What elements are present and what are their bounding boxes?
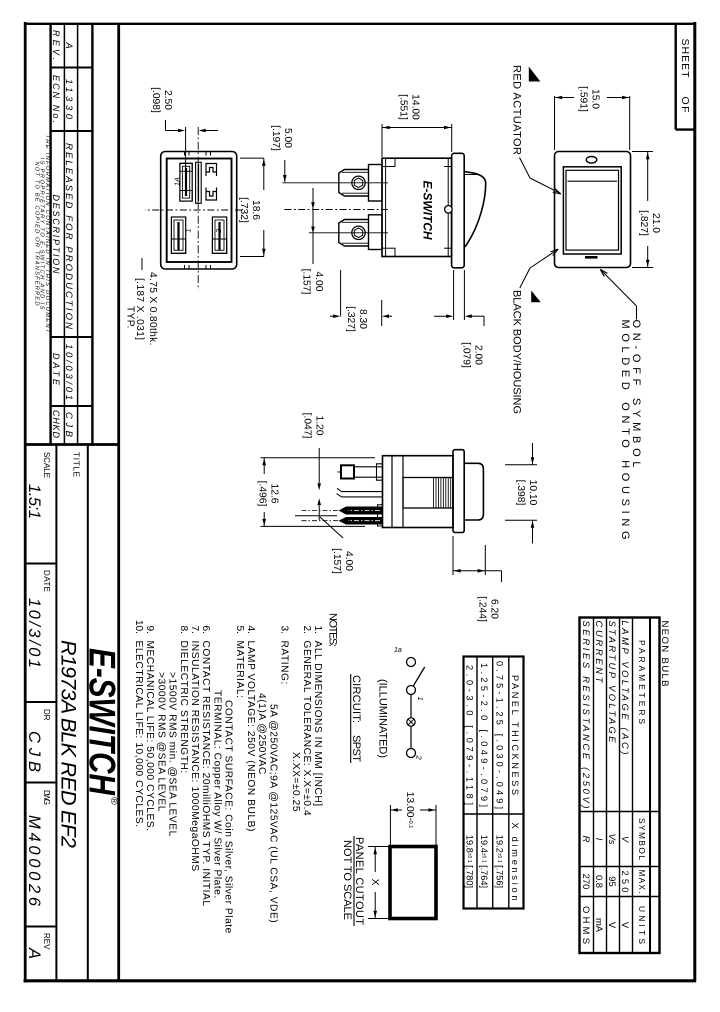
svg-text:R: R (581, 836, 592, 843)
svg-text:I: I (594, 838, 605, 841)
svg-text:DR: DR (42, 709, 51, 721)
svg-text:2.00: 2.00 (473, 345, 484, 365)
svg-text:[.827]: [.827] (638, 210, 649, 236)
svg-text:21.0: 21.0 (650, 213, 661, 233)
svg-text:MATERIAL:: MATERIAL: (234, 641, 245, 699)
svg-text:12.6: 12.6 (269, 483, 280, 503)
svg-text:6.20: 6.20 (489, 599, 500, 619)
svg-text:NOTES:: NOTES: (327, 613, 339, 647)
svg-text:[.197]: [.197] (270, 125, 281, 151)
svg-text:TERMINAL: Copper Alloy W/ Silv: TERMINAL: Copper Alloy W/ Silver Plate. (211, 690, 222, 899)
svg-text:[.079]: [.079] (461, 342, 472, 368)
svg-text:MAX.: MAX. (637, 870, 647, 894)
svg-text:1: 1 (184, 229, 193, 233)
svg-text:SHEET: SHEET (679, 39, 691, 79)
svg-text:[.496]: [.496] (256, 481, 267, 507)
svg-text:270: 270 (581, 874, 592, 890)
svg-text:4.00: 4.00 (313, 271, 324, 291)
svg-text:RATING:: RATING: (279, 641, 290, 685)
svg-text:18.6: 18.6 (250, 200, 261, 220)
svg-text:E-SWITCH: E-SWITCH (421, 181, 435, 240)
svg-text:E-SWITCH: E-SWITCH (82, 648, 123, 796)
svg-text:8.: 8. (178, 626, 189, 635)
svg-text:(ILLUMINATED): (ILLUMINATED) (377, 679, 389, 758)
svg-text:CIRCUIT:: CIRCUIT: (350, 675, 362, 723)
svg-text:7.: 7. (189, 626, 200, 635)
svg-text:CJB: CJB (25, 731, 43, 772)
svg-text:BLACK BODY/HOUSING: BLACK BODY/HOUSING (511, 290, 523, 414)
svg-text:GENERAL TOLERANCE: X.X=±0.4: GENERAL TOLERANCE: X.X=±0.4 (301, 641, 312, 817)
svg-text:0.8: 0.8 (594, 875, 605, 888)
svg-text:8.30: 8.30 (357, 309, 368, 329)
svg-text:2.: 2. (301, 626, 312, 635)
svg-text:5.: 5. (234, 626, 245, 635)
svg-text:4.: 4. (245, 626, 256, 635)
svg-text:4.75 X 0.80thk.: 4.75 X 0.80thk. (147, 272, 158, 346)
svg-text:1.20: 1.20 (314, 415, 325, 435)
svg-text:ELECTRICAL LIFE: 10,000 CYCLES: ELECTRICAL LIFE: 10,000 CYCLES. (133, 641, 144, 828)
svg-text:NOT TO BE COPIED OR TRANSFERRE: NOT TO BE COPIED OR TRANSFERRED (33, 162, 39, 306)
svg-text:NOT TO SCALE: NOT TO SCALE (341, 840, 353, 920)
svg-text:[.047]: [.047] (301, 413, 312, 439)
svg-text:0.75-1.25 [.030-.049]: 0.75-1.25 [.030-.049] (495, 661, 505, 809)
svg-text:CHKD: CHKD (51, 410, 61, 439)
svg-text:2: 2 (415, 755, 424, 761)
svg-text:SPST: SPST (350, 735, 362, 762)
svg-text:1: 1 (416, 697, 425, 701)
svg-text:14.00: 14.00 (410, 94, 421, 120)
svg-text:ALL DIMENSIONS IN MM [INCH]: ALL DIMENSIONS IN MM [INCH] (312, 641, 323, 807)
svg-text:1.5:1: 1.5:1 (25, 484, 43, 519)
svg-text:RELEASED FOR PRODUCTION: RELEASED FOR PRODUCTION (63, 143, 74, 329)
svg-text:®: ® (108, 797, 120, 805)
svg-text:X: X (369, 879, 380, 886)
svg-text:UNITS: UNITS (637, 906, 647, 944)
svg-text:RED ACTUATOR: RED ACTUATOR (511, 65, 523, 155)
svg-text:4(1)A @250VAC: 4(1)A @250VAC (256, 693, 267, 775)
svg-text:SCALE: SCALE (42, 452, 51, 478)
svg-text:TYP.: TYP. (125, 306, 136, 329)
svg-text:PANEL THICKNESS: PANEL THICKNESS (510, 675, 520, 795)
svg-text:mA: mA (594, 918, 605, 933)
svg-text:9.: 9. (144, 626, 155, 635)
svg-text:1A: 1A (173, 177, 182, 186)
svg-text:OF: OF (679, 97, 691, 113)
svg-text:DIELECTRIC STRENGTH:: DIELECTRIC STRENGTH: (178, 641, 189, 774)
svg-text:PANEL CUTOUT: PANEL CUTOUT (353, 837, 365, 925)
svg-text:Vs: Vs (607, 834, 618, 845)
svg-text:A: A (63, 41, 74, 48)
svg-text:15.0: 15.0 (590, 89, 601, 109)
svg-text:CJB: CJB (63, 412, 74, 438)
svg-text:[.398]: [.398] (515, 480, 526, 506)
svg-text:DWG: DWG (42, 790, 51, 805)
svg-text:LAMP VOLTAGE: 250V (NEON BULB): LAMP VOLTAGE: 250V (NEON BULB) (245, 641, 256, 832)
svg-text:[.244]: [.244] (477, 596, 488, 622)
svg-text:X.XX=±0.25: X.XX=±0.25 (290, 752, 301, 812)
svg-text:250: 250 (620, 871, 631, 893)
svg-text:1a: 1a (394, 647, 402, 654)
svg-text:INSULATION RESISTANCE: 1000Meg: INSULATION RESISTANCE: 1000MegaOHMS (189, 641, 200, 872)
svg-text:5.00: 5.00 (282, 128, 293, 148)
svg-text:V: V (620, 836, 631, 843)
svg-text:>1500V RMS min. @SEA LEVEL: >1500V RMS min. @SEA LEVEL (167, 672, 178, 837)
svg-text:[.098]: [.098] (150, 87, 161, 113)
svg-text:[.157]: [.157] (301, 269, 312, 295)
svg-text:[.327]: [.327] (345, 306, 356, 332)
svg-text:CONTACT SURFACE: Coin Silver,: CONTACT SURFACE: Coin Silver, Silver Pla… (223, 700, 234, 934)
svg-text:V: V (607, 922, 618, 929)
svg-text:3.: 3. (279, 626, 290, 635)
svg-text:10.: 10. (133, 620, 144, 634)
svg-text:V: V (620, 922, 631, 929)
svg-text:R1973A BLK RED EF2: R1973A BLK RED EF2 (57, 640, 81, 848)
svg-text:DATE: DATE (42, 570, 51, 592)
svg-text:5A @250VAC;9A @125VAC (UL CSA,: 5A @250VAC;9A @125VAC (UL CSA, VDE) (267, 704, 278, 923)
svg-text:[.157]: [.157] (331, 548, 342, 574)
svg-text:LAMP VOLTAGE (AC): LAMP VOLTAGE (AC) (620, 621, 631, 755)
svg-text:A: A (25, 947, 43, 959)
svg-text:2.50: 2.50 (162, 90, 173, 110)
svg-text:6.: 6. (200, 626, 211, 635)
svg-text:1.: 1. (312, 626, 323, 635)
svg-text:MECHANICAL LIFE: 50,000 CYCLES: MECHANICAL LIFE: 50,000 CYCLES. (144, 641, 155, 832)
svg-text:10.10: 10.10 (527, 480, 538, 506)
svg-text:[.551]: [.551] (398, 94, 409, 120)
svg-text:[.591]: [.591] (577, 86, 588, 112)
svg-text:4.00: 4.00 (343, 551, 354, 571)
svg-text:>3000V RMS @SEA LEVEL: >3000V RMS @SEA LEVEL (155, 672, 166, 812)
svg-text:2: 2 (214, 229, 223, 234)
svg-text:DESCRIPTION: DESCRIPTION (51, 195, 61, 275)
svg-text:95: 95 (607, 876, 618, 886)
svg-text:TITLE: TITLE (72, 452, 81, 477)
svg-text:CONTACT RESISTANCE: 20milliOHM: CONTACT RESISTANCE: 20milliOHMS TYP. INI… (200, 641, 211, 907)
svg-text:SERIES RESISTANCE (250V): SERIES RESISTANCE (250V) (581, 621, 592, 809)
